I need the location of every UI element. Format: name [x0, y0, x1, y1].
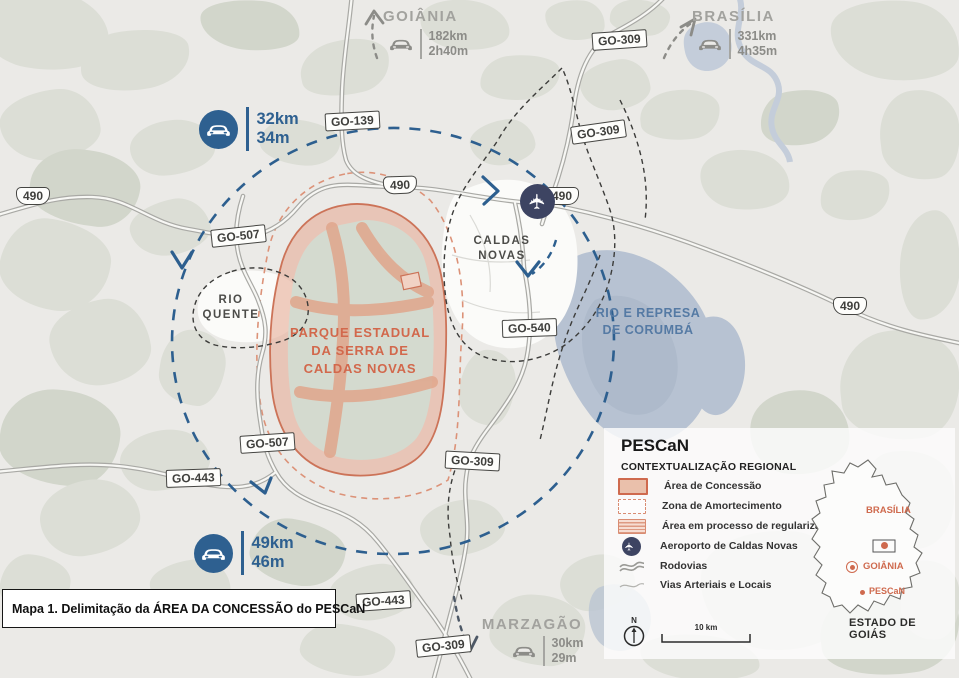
destination-brasilia: BRASÍLIA 331km 4h35m	[692, 8, 777, 59]
park-label: PARQUE ESTADUAL DA SERRA DE CALDAS NOVAS	[290, 324, 430, 378]
road-label-go309-top: GO-309	[591, 29, 647, 51]
legend-title: PESCaN	[621, 436, 689, 456]
map-title: Mapa 1. Delimitação da ÁREA DA CONCESSÃO…	[3, 602, 365, 616]
travel-time: 46m	[252, 553, 294, 572]
road-label-go507-south: GO-507	[239, 432, 295, 454]
goiania-dot	[850, 565, 855, 570]
travel-time: 29m	[552, 651, 584, 666]
inset-state-label: ESTADO DE GOIÁS	[849, 617, 955, 641]
destination-name-marzagao: MARZAGÃO	[482, 616, 582, 633]
car-icon	[512, 643, 536, 659]
airport-legend-icon: ✈	[622, 537, 641, 556]
divider	[543, 636, 545, 666]
legend-item-airport: ✈ Aeroporto de Caldas Novas	[618, 536, 798, 556]
concession-swatch	[618, 478, 648, 495]
road-label-go309-mid: GO-309	[445, 451, 501, 472]
regularization-area	[401, 272, 422, 289]
inset-goiania-label: GOIÂNIA	[863, 561, 904, 572]
destination-name: BRASÍLIA	[692, 8, 777, 25]
inset-brasilia-label: BRASÍLIA	[866, 505, 911, 516]
travel-time: 34m	[257, 129, 299, 148]
airport-icon: ✈	[520, 184, 555, 219]
buffer-swatch	[618, 499, 646, 514]
divider	[420, 29, 422, 59]
road-label-go540: GO-540	[502, 318, 557, 338]
highway-swatch	[618, 558, 644, 574]
destination-marzagao: 30km 29m	[506, 636, 583, 666]
map-title-box: Mapa 1. Delimitação da ÁREA DA CONCESSÃO…	[2, 589, 336, 628]
travel-time: 2h40m	[429, 44, 469, 59]
travel-time: 4h35m	[738, 44, 778, 59]
brasilia-dot	[881, 542, 888, 549]
divider	[729, 29, 731, 59]
legend-item-buffer: Zona de Amortecimento	[618, 496, 782, 516]
legend-item-local-roads: Vias Arteriais e Locais	[618, 575, 771, 595]
car-icon	[698, 36, 722, 52]
distance: 32km	[257, 110, 299, 129]
regional-map: GOIÂNIA 182km 2h40m BRASÍLIA 331km 4h35m…	[0, 0, 959, 678]
distance: 182km	[429, 29, 469, 44]
airplane-glyph: ✈	[527, 193, 548, 211]
north-label: N	[631, 616, 637, 625]
regularization-swatch	[618, 519, 646, 534]
legend-panel: PESCaN CONTEXTUALIZAÇÃO REGIONAL Área de…	[604, 428, 955, 659]
travel-badge-north: 32km 34m	[199, 107, 299, 151]
car-icon	[389, 36, 413, 52]
distance: 30km	[552, 636, 584, 651]
divider	[246, 107, 249, 151]
pescan-dot	[860, 590, 865, 595]
car-badge-icon	[194, 534, 233, 573]
inset-pescan-label: PESCaN	[869, 586, 905, 596]
car-badge-icon	[199, 110, 238, 149]
road-shield-490-mid: 490	[383, 175, 418, 194]
distance: 49km	[252, 534, 294, 553]
destination-goiania: GOIÂNIA 182km 2h40m	[383, 8, 468, 59]
scale-bar	[662, 634, 750, 642]
legend-item-highways: Rodovias	[618, 556, 707, 576]
legend-subtitle: CONTEXTUALIZAÇÃO REGIONAL	[621, 461, 796, 473]
travel-badge-south: 49km 46m	[194, 531, 294, 575]
destination-name: GOIÂNIA	[383, 8, 468, 25]
goias-outline	[812, 460, 922, 613]
water-label: RIO E REPRESA DE CORUMBÁ	[596, 305, 700, 339]
road-shield-490-west: 490	[16, 187, 50, 205]
divider	[241, 531, 244, 575]
legend-item-concession: Área de Concessão	[618, 476, 761, 496]
road-label-go139: GO-139	[325, 111, 381, 132]
road-label-go443-west: GO-443	[166, 468, 221, 488]
north-and-scale: N 10 km	[616, 614, 776, 654]
place-caldas-novas: CALDAS NOVAS	[474, 234, 531, 264]
route-arrow-s	[172, 252, 192, 268]
place-rio-quente: RIO QUENTE	[203, 293, 260, 323]
local-road-swatch	[618, 579, 644, 591]
scale-label: 10 km	[695, 623, 718, 632]
road-shield-490-east: 490	[833, 297, 867, 315]
distance: 331km	[738, 29, 778, 44]
goias-inset-map	[806, 455, 951, 635]
